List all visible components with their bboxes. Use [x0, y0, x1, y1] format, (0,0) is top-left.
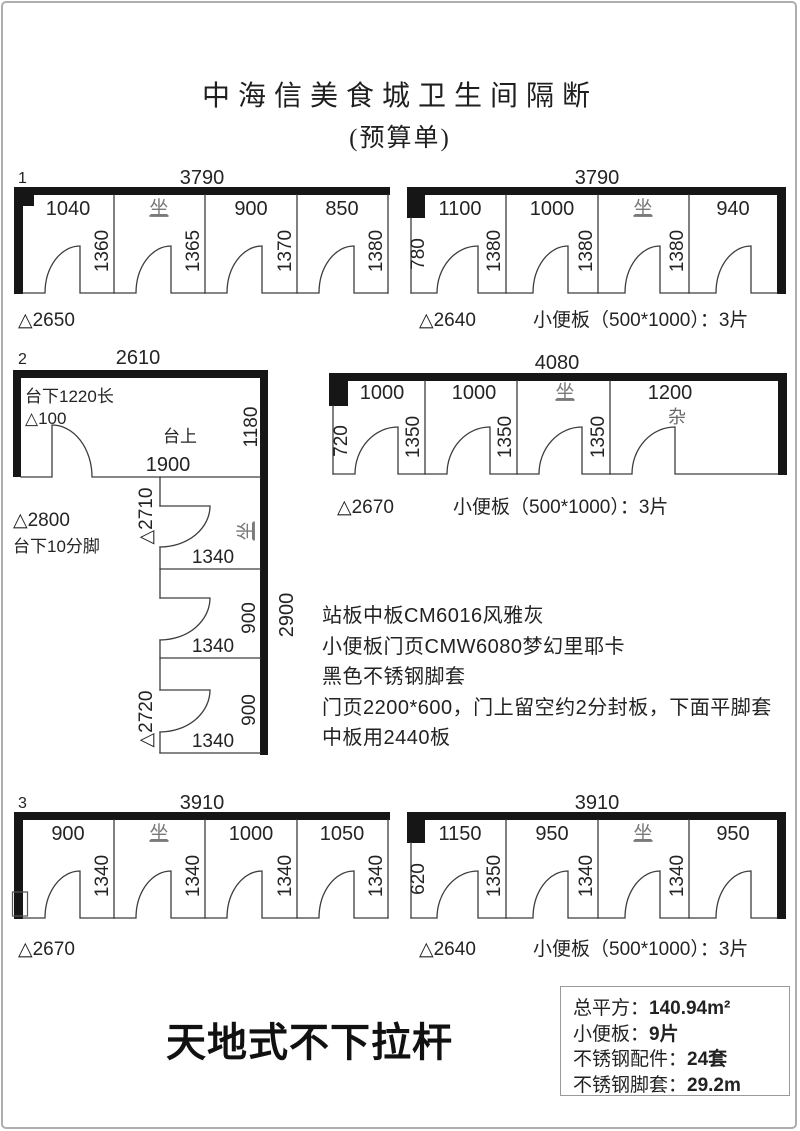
stall-door — [160, 598, 210, 640]
stall-width-label: 950 — [716, 823, 749, 845]
spec-note-line: 小便板门页CMW6080梦幻里耶卡 — [322, 632, 800, 663]
floor-height-note: △2710 — [136, 488, 157, 545]
stall-front-label: 1340 — [192, 547, 234, 568]
spec-note-line: 站板中板CM6016风雅灰 — [322, 601, 800, 632]
stall-front-label: 1340 — [192, 731, 234, 752]
spec-note-line: 黑色不锈钢脚套 — [322, 662, 800, 693]
total-width-dim: 2610 — [116, 347, 161, 369]
stall-dividers — [506, 820, 689, 918]
diagram-2-plan: 2 2610 台下1220长 △100 台上 1180 1900 △2800 台… — [10, 348, 310, 760]
floor-height-note: △2640 — [419, 939, 476, 960]
floor-height-note: △2670 — [337, 497, 394, 518]
stall-width-label: 1000 — [360, 382, 405, 404]
stall-width-label: 1200 — [648, 382, 693, 404]
diagram-1-plan: 1 3790 1040 坐 900 850 1360 1365 1370 138… — [12, 168, 394, 334]
stall-height-label: 1370 — [275, 230, 296, 272]
stall-width-label: 1000 — [452, 382, 497, 404]
corner-wall-block — [407, 812, 425, 843]
stall-width-label: 950 — [535, 823, 568, 845]
stall-width-label: 850 — [325, 198, 358, 220]
stall-width-label: 1100 — [438, 198, 481, 220]
counter-top-label: 台上 — [163, 427, 197, 446]
floor-height-note: △2720 — [136, 691, 157, 748]
summary-row: 不锈钢配件：24套 — [573, 1047, 777, 1073]
stall-side-label: 900 — [239, 602, 260, 634]
spec-note-line: 中板用2440板 — [322, 723, 800, 754]
wall-notch — [23, 195, 34, 206]
seat-stall-label: 坐 — [149, 822, 168, 844]
total-width-dim: 3910 — [180, 792, 225, 814]
stall-width-label: 900 — [51, 823, 84, 845]
summary-value: 140.94m² — [649, 998, 730, 1019]
summary-label: 小便板： — [573, 1024, 649, 1045]
stall-height-label: 1340 — [92, 855, 113, 897]
total-width-dim: 4080 — [535, 352, 580, 374]
feet-note: 台下10分脚 — [13, 537, 100, 556]
seat-stall-label: 坐 — [633, 197, 652, 219]
stall-height-label: 1340 — [576, 855, 597, 897]
stall-height-label: 1365 — [183, 230, 204, 272]
stall-height-label: 1380 — [366, 230, 387, 272]
stall-width-label: 1000 — [530, 198, 575, 220]
seat-stall-label: 坐 — [555, 381, 574, 403]
summary-label: 总平方： — [573, 998, 649, 1019]
stall-front-label: 1340 — [192, 636, 234, 657]
stall-door — [160, 690, 210, 732]
delta-100-note: △100 — [25, 409, 66, 428]
column-height-dim: 2900 — [276, 593, 298, 638]
stall-door — [689, 871, 777, 918]
stall-door — [160, 506, 210, 547]
stall-width-label: 1150 — [438, 823, 481, 845]
seat-stall-label: 坐 — [633, 822, 652, 844]
left-height-label: 780 — [408, 238, 429, 270]
total-width-dim: 3910 — [575, 792, 620, 814]
summary-value: 29.2m — [687, 1075, 741, 1096]
stall-height-label: 1340 — [366, 855, 387, 897]
floor-height-note: △2800 — [13, 510, 70, 531]
diagram-3-plan: 3 3910 900 坐 1000 1050 1340 1340 1340 13… — [12, 793, 394, 963]
stall-height-label: 1380 — [576, 230, 597, 272]
stall-door — [689, 246, 777, 293]
stall-width-label: 940 — [716, 198, 749, 220]
left-wall — [13, 370, 21, 477]
stall-height-label: 1360 — [92, 230, 113, 272]
left-height-label: 620 — [408, 863, 429, 895]
total-width-dim: 3790 — [575, 167, 620, 189]
room-height-label: 1180 — [241, 407, 262, 448]
stall-height-label: 1340 — [183, 855, 204, 897]
summary-row: 小便板：9片 — [573, 1022, 777, 1048]
summary-value: 9片 — [649, 1024, 679, 1045]
under-counter-note: 台下1220长 — [25, 387, 114, 406]
stall-width-label: 1040 — [46, 198, 91, 220]
top-wall — [329, 373, 787, 381]
inner-width-dim: 1900 — [146, 454, 191, 476]
misc-stall-label: 杂 — [668, 407, 686, 427]
right-wall — [777, 812, 786, 919]
top-wall — [13, 370, 268, 378]
urinal-note: 小便板（500*1000）：3片 — [453, 496, 668, 518]
right-wall — [778, 373, 787, 475]
stall-height-label: 1340 — [275, 855, 296, 897]
stall-height-label: 1350 — [588, 416, 609, 458]
page-subtitle: (预算单) — [0, 118, 800, 154]
diagram-2r-plan: 4080 720 1000 1000 坐 1200 杂 1350 1350 13… — [325, 353, 790, 525]
corner-wall-block — [407, 187, 425, 218]
page-title: 中海信美食城卫生间隔断 — [0, 74, 800, 114]
stall-height-label: 1340 — [667, 855, 688, 897]
summary-row: 不锈钢脚套：29.2m — [573, 1073, 777, 1099]
corner-wall-block — [329, 373, 348, 406]
summary-value: 24套 — [687, 1049, 727, 1070]
left-wall — [14, 812, 23, 919]
urinal-note: 小便板（500*1000）：3片 — [533, 938, 748, 960]
diagram-number: 1 — [18, 170, 27, 187]
stall-height-label: 1380 — [484, 230, 505, 272]
stall-width-label: 900 — [234, 198, 267, 220]
floor-height-note: △2670 — [18, 939, 75, 960]
urinal-note: 小便板（500*1000）：3片 — [533, 309, 748, 331]
stall-height-label: 1350 — [484, 855, 505, 897]
stall-door — [610, 427, 778, 474]
spec-note-line: 门页2200*600，门上留空约2分封板，下面平脚套 — [322, 693, 800, 724]
floor-height-note: △2640 — [419, 310, 476, 331]
total-width-dim: 3790 — [180, 167, 225, 189]
budget-sheet-page: 中海信美食城卫生间隔断 (预算单) 1 3790 1040 坐 900 850 … — [0, 0, 800, 1131]
summary-row: 总平方：140.94m² — [573, 996, 777, 1022]
stall-height-label: 1350 — [495, 416, 516, 458]
floor-height-note: △2650 — [18, 310, 75, 331]
diagram-number: 2 — [18, 351, 27, 368]
right-wall — [777, 187, 786, 294]
stall-height-label: 1380 — [667, 230, 688, 272]
spec-notes: 站板中板CM6016风雅灰 小便板门页CMW6080梦幻里耶卡 黑色不锈钢脚套 … — [322, 601, 800, 754]
summary-label: 不锈钢脚套： — [573, 1075, 687, 1096]
stall-height-label: 1350 — [403, 416, 424, 458]
left-height-label: 720 — [331, 425, 352, 457]
stall-width-label: 1050 — [320, 823, 365, 845]
stall-side-label: 900 — [239, 694, 260, 726]
room-door — [21, 425, 260, 477]
install-style-note: 天地式不下拉杆 — [166, 1010, 453, 1068]
diagram-number: 3 — [18, 795, 27, 812]
left-wall — [14, 187, 23, 294]
summary-box: 总平方：140.94m² 小便板：9片 不锈钢配件：24套 不锈钢脚套：29.2… — [560, 986, 790, 1096]
seat-stall-label: 坐 — [149, 197, 168, 219]
diagram-1r-plan: 3790 780 1100 1000 坐 940 1380 1380 1380 … — [405, 168, 790, 334]
stall-width-label: 1000 — [229, 823, 274, 845]
summary-label: 不锈钢配件： — [573, 1049, 687, 1070]
seat-stall-label: 坐 — [235, 521, 257, 540]
diagram-3r-plan: 3910 620 1150 950 坐 950 1350 1340 1340 △… — [405, 793, 790, 963]
